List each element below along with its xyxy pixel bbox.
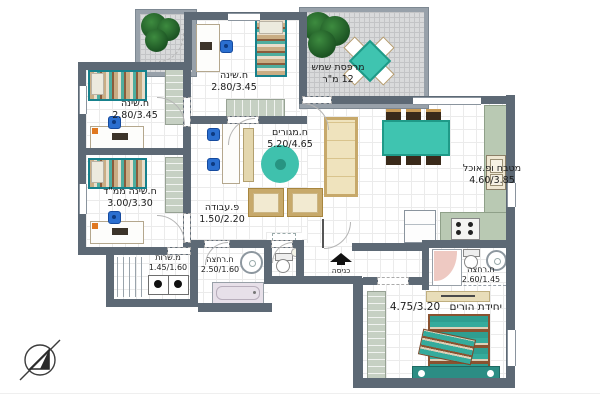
burner bbox=[456, 230, 461, 235]
room-label-living: ח.מגורים 5.20/4.65 bbox=[256, 127, 324, 151]
room-name: יחידת הורים bbox=[450, 301, 503, 313]
door-leaf bbox=[322, 219, 324, 248]
room-dims: 1.45/1.60 bbox=[142, 263, 194, 273]
room-name: פ.עבודה bbox=[205, 202, 239, 213]
room-label-bath: ח.רחצה 2.50/1.60 bbox=[196, 255, 244, 275]
dining-table bbox=[382, 120, 450, 156]
window bbox=[507, 330, 516, 366]
door-opening bbox=[184, 214, 190, 242]
room-label-work: פ.עבודה 1.50/2.20 bbox=[194, 202, 250, 226]
room-name: ח.שינה ממ"ד bbox=[103, 186, 157, 197]
wall bbox=[408, 277, 424, 285]
rug-center bbox=[275, 159, 286, 170]
north-compass-icon bbox=[14, 334, 66, 386]
entrance-arrow-icon bbox=[330, 253, 352, 262]
door-opening bbox=[303, 97, 331, 103]
wall bbox=[106, 247, 114, 307]
door-arc bbox=[324, 222, 351, 249]
room-label-service: מ.שרות 1.45/1.60 bbox=[142, 253, 194, 273]
pillow bbox=[91, 73, 104, 95]
fridge-divider bbox=[405, 224, 435, 225]
room-dims: 4.75/3.20 bbox=[390, 301, 440, 313]
laptop-icon bbox=[112, 228, 128, 235]
bench-knob bbox=[418, 370, 425, 377]
office-chair-icon bbox=[207, 128, 220, 141]
bathtub-icon bbox=[212, 282, 264, 304]
page-divider bbox=[0, 393, 600, 394]
room-dims: 12 מ"ר bbox=[302, 74, 374, 86]
burner bbox=[468, 230, 473, 235]
room-name: מרפסת שמש bbox=[311, 62, 364, 73]
room-label-master: יחידת הורים 4.75/3.20 bbox=[390, 301, 502, 314]
room-dims: 3.00/3.30 bbox=[88, 198, 172, 210]
room-label-master-bath: ח.רחצה 2.60/1.45 bbox=[455, 265, 507, 285]
desk-item bbox=[92, 223, 98, 229]
pillow bbox=[91, 161, 104, 183]
armchair bbox=[287, 188, 323, 217]
sofa bbox=[324, 117, 358, 197]
entrance-label: כניסה bbox=[324, 266, 358, 275]
room-dims: 2.50/1.60 bbox=[196, 265, 244, 275]
wall bbox=[352, 243, 426, 251]
wall bbox=[422, 240, 508, 248]
room-label-balcony: מרפסת שמש 12 מ"ר bbox=[302, 62, 374, 86]
office-chair-icon bbox=[108, 211, 121, 224]
wall bbox=[363, 277, 378, 285]
floor-plan: ח.שינה 2.80/3.45 ח.שינה 2.80/3.45 ח.שינה… bbox=[0, 0, 600, 400]
wall bbox=[353, 378, 515, 388]
room-label-bedroom-left: ח.שינה 2.80/3.45 bbox=[103, 98, 167, 122]
office-chair-icon bbox=[220, 40, 233, 53]
fridge bbox=[404, 210, 436, 243]
stove-icon bbox=[451, 218, 480, 240]
tub-drain bbox=[253, 291, 256, 294]
room-dims: 5.20/4.65 bbox=[256, 139, 324, 151]
room-dims: 4.60/3.85 bbox=[448, 175, 536, 187]
room-dims: 2.60/1.45 bbox=[455, 275, 507, 285]
shelf-item bbox=[441, 295, 475, 297]
entrance-arrow-stem bbox=[337, 262, 345, 265]
door-opening bbox=[378, 278, 408, 284]
room-label-mamad: ח.שינה ממ"ד 3.00/3.30 bbox=[88, 186, 172, 210]
wardrobe bbox=[367, 291, 386, 381]
room-label-bedroom-top: ח.שינה 2.80/3.45 bbox=[202, 70, 266, 94]
room-name: ח.רחצה bbox=[467, 265, 494, 274]
shower-tray bbox=[434, 251, 457, 281]
room-name: ח.שינה bbox=[220, 70, 248, 81]
room-name: מטבח ופ.אוכל bbox=[463, 163, 521, 174]
window bbox=[413, 97, 481, 105]
room-name: ח.מגורים bbox=[272, 127, 308, 138]
room-name: כניסה bbox=[332, 266, 350, 275]
room-dims: 1.50/2.20 bbox=[194, 214, 250, 226]
wall bbox=[78, 148, 188, 155]
room-dims: 2.80/3.45 bbox=[103, 110, 167, 122]
laundry-rack-icon bbox=[117, 257, 144, 297]
room-name: מ.שרות bbox=[155, 253, 181, 262]
washing-machine-icon bbox=[148, 275, 169, 295]
washing-machine-icon bbox=[168, 275, 189, 295]
armchair bbox=[248, 188, 284, 217]
wall bbox=[264, 276, 362, 284]
wall bbox=[198, 303, 272, 312]
wall bbox=[353, 278, 363, 382]
laptop-icon bbox=[112, 133, 128, 140]
wall bbox=[106, 299, 198, 307]
wall bbox=[78, 62, 192, 70]
window bbox=[79, 86, 87, 114]
open-boundary bbox=[429, 285, 506, 286]
window bbox=[79, 184, 87, 214]
burner bbox=[456, 222, 461, 227]
room-label-kitchen: מטבח ופ.אוכל 4.60/3.85 bbox=[448, 163, 536, 187]
pillow bbox=[259, 21, 283, 34]
desk-item bbox=[92, 128, 98, 134]
window bbox=[228, 13, 260, 21]
dresser bbox=[226, 99, 285, 117]
room-dims: 2.80/3.45 bbox=[202, 82, 266, 94]
tree-icon bbox=[308, 30, 336, 58]
room-name: ח.רחצה bbox=[206, 255, 233, 264]
office-chair-icon bbox=[207, 158, 220, 171]
burner bbox=[468, 222, 473, 227]
bench-knob bbox=[487, 370, 494, 377]
wall bbox=[299, 12, 307, 104]
laptop-icon bbox=[200, 42, 212, 50]
room-name: ח.שינה bbox=[121, 98, 149, 109]
